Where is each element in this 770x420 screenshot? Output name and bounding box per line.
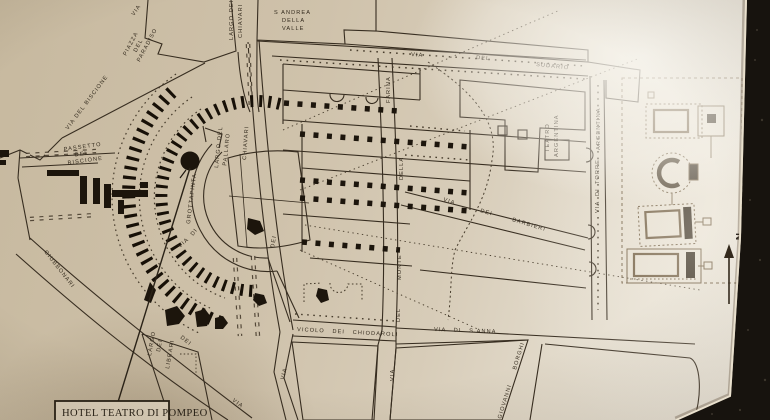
compass-arrow-icon xyxy=(724,244,734,258)
picture-frame xyxy=(676,0,770,420)
framed-map-photo: VIA PIAZZA DEL PARADISO LARGO DEI CHIAVA… xyxy=(0,0,770,420)
frame-overlay: N xyxy=(0,0,770,420)
